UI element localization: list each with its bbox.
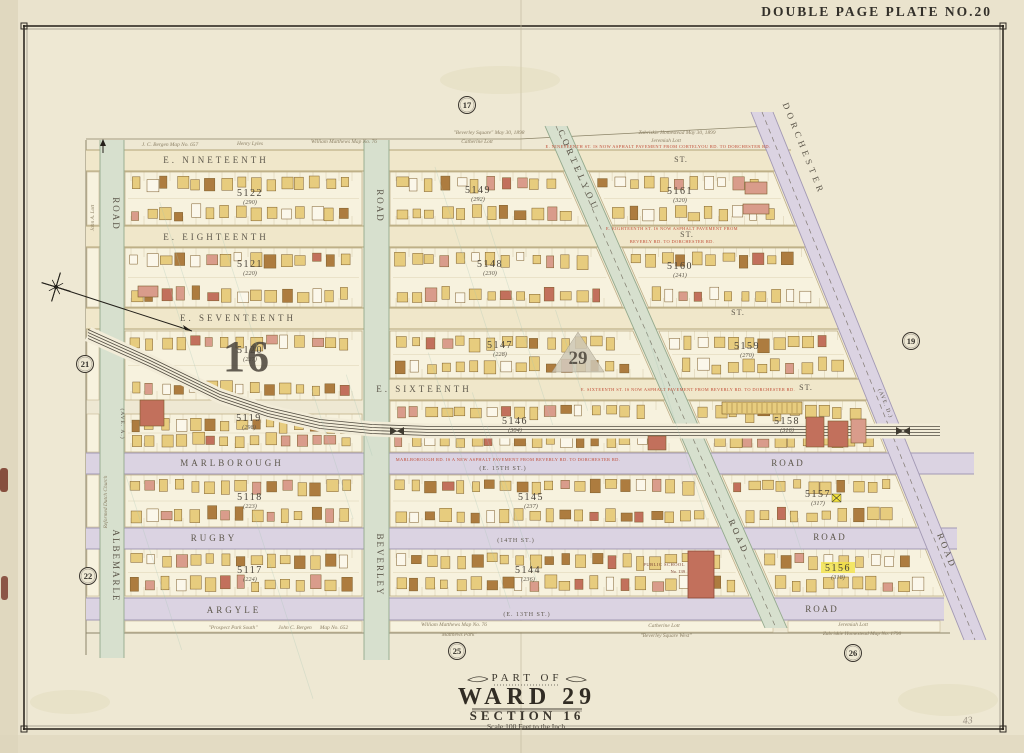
building	[397, 177, 409, 187]
building	[294, 511, 302, 519]
annotation: Henry Lyles	[236, 141, 263, 147]
building	[753, 253, 764, 265]
building	[653, 582, 664, 592]
building	[222, 178, 233, 190]
street-name: E. EIGHTEENTH	[163, 232, 268, 242]
building	[280, 579, 289, 588]
building	[470, 361, 478, 372]
building	[698, 358, 710, 370]
paving-note: E. NINETEENTH ST. IS NOW ASPHALT PAVEMEN…	[546, 144, 771, 149]
svg-text:(304): (304)	[508, 427, 522, 434]
building	[545, 575, 557, 588]
building	[442, 363, 450, 371]
svg-text:(317): (317)	[811, 500, 825, 507]
building	[455, 293, 465, 303]
block-number: 5160	[667, 261, 693, 272]
building	[395, 361, 405, 374]
building	[145, 436, 154, 447]
building	[575, 481, 585, 491]
building	[295, 256, 305, 266]
building	[621, 579, 629, 591]
svg-text:(318): (318)	[831, 574, 845, 581]
svg-text:(316): (316)	[780, 427, 794, 434]
building	[652, 479, 661, 491]
svg-text:26: 26	[849, 648, 858, 658]
building	[204, 178, 214, 191]
annotation: Map No. 652	[319, 625, 349, 631]
building	[608, 556, 616, 569]
building	[163, 384, 171, 394]
building	[472, 205, 481, 218]
building	[621, 480, 631, 492]
building	[204, 482, 214, 494]
building	[238, 177, 246, 187]
building	[683, 482, 694, 496]
building	[442, 286, 450, 299]
building	[413, 209, 421, 218]
map-generated-layer: PUBLIC SCHOOLNo. 1395122(290)5149(292)51…	[0, 0, 1024, 753]
block-5121	[125, 248, 362, 307]
building	[739, 255, 748, 268]
building	[530, 511, 541, 520]
building	[471, 577, 482, 590]
title-ward: WARD 29	[458, 684, 596, 710]
building	[147, 254, 158, 267]
building	[630, 206, 638, 220]
building	[412, 293, 421, 303]
building	[819, 405, 829, 416]
building	[590, 479, 600, 493]
svg-text:25: 25	[453, 646, 462, 656]
building	[413, 338, 420, 346]
building	[309, 176, 319, 188]
annotation: Catherine Lott	[648, 623, 680, 629]
building	[775, 576, 786, 589]
building	[745, 182, 767, 194]
building	[130, 255, 138, 264]
building	[788, 336, 799, 346]
building	[174, 509, 182, 521]
building	[533, 255, 541, 263]
building	[615, 177, 626, 187]
annotation: John A. Lott	[90, 204, 96, 231]
building	[517, 482, 528, 492]
building	[838, 508, 847, 521]
building	[280, 335, 288, 349]
building	[138, 286, 158, 297]
building	[502, 178, 510, 189]
svg-text:(270): (270)	[740, 352, 754, 359]
building	[800, 291, 811, 303]
building	[441, 176, 450, 190]
building	[191, 180, 200, 190]
annotation: Zabriskie Homestead May 30, 1899	[638, 130, 715, 136]
paving-note: BEVERLY RD. TO DORCHESTER RD.	[630, 239, 715, 244]
building	[488, 292, 496, 300]
building	[866, 576, 876, 590]
building	[698, 337, 708, 347]
block-number: 5121	[237, 259, 263, 270]
building	[325, 384, 335, 393]
building	[297, 435, 307, 446]
building	[500, 555, 508, 564]
building	[743, 359, 755, 372]
building	[683, 358, 690, 372]
building	[487, 408, 497, 417]
building	[530, 407, 538, 420]
building	[294, 177, 303, 189]
building	[590, 576, 598, 589]
building	[471, 513, 479, 523]
building	[221, 511, 230, 520]
building	[396, 337, 406, 348]
annotation: "Beverley Square" May 30, 1898	[454, 130, 525, 136]
building	[312, 207, 324, 220]
building	[606, 338, 614, 350]
street-name: ARGYLE	[207, 605, 262, 615]
building	[851, 419, 866, 443]
building	[575, 579, 583, 589]
building	[517, 292, 525, 300]
paving-note: E. SIXTEENTH ST. IS NOW ASPHALT PAVEMENT…	[581, 387, 795, 392]
svg-text:PUBLIC SCHOOL: PUBLIC SCHOOL	[643, 562, 685, 567]
building	[456, 362, 464, 372]
building	[559, 581, 570, 590]
building	[140, 400, 164, 426]
building	[484, 361, 496, 374]
building	[342, 577, 353, 591]
x-box-marker	[832, 494, 841, 502]
building	[252, 510, 263, 522]
paving-note: MARLBOROUGH RD. IS A NEW ASPHALT PAVEMEN…	[396, 457, 621, 462]
building	[833, 407, 842, 418]
building	[710, 287, 719, 299]
building	[160, 176, 167, 188]
building	[802, 336, 813, 348]
building	[635, 512, 644, 522]
street-name: (AVE. A.)	[119, 408, 126, 439]
block-number: 5157	[805, 489, 831, 500]
building	[743, 204, 769, 214]
building	[637, 405, 644, 419]
building	[548, 207, 557, 221]
building	[484, 480, 494, 489]
building	[426, 578, 435, 589]
street-name: ROAD	[813, 532, 847, 542]
building	[561, 255, 570, 268]
building	[472, 482, 479, 492]
building	[177, 579, 187, 591]
building	[500, 509, 509, 523]
building	[193, 432, 205, 444]
building	[756, 292, 766, 302]
building	[266, 433, 277, 445]
building	[340, 339, 348, 351]
building	[397, 578, 407, 589]
building	[898, 581, 909, 591]
building	[575, 510, 583, 521]
building	[440, 580, 447, 589]
building	[428, 555, 438, 566]
building	[501, 361, 512, 372]
building	[191, 256, 201, 267]
building	[675, 206, 687, 218]
building	[822, 511, 831, 519]
building	[529, 338, 537, 348]
block-5161	[589, 172, 794, 225]
building	[280, 556, 290, 564]
building	[206, 554, 214, 564]
building	[145, 383, 153, 394]
building	[692, 252, 702, 265]
building	[807, 513, 818, 522]
building	[728, 362, 738, 372]
building	[281, 509, 288, 523]
building	[163, 556, 172, 567]
building	[621, 513, 632, 521]
building	[660, 208, 667, 221]
building	[327, 480, 339, 492]
building	[670, 338, 680, 349]
building	[395, 480, 405, 490]
street-name: ST.	[680, 230, 694, 239]
building	[267, 512, 274, 521]
street-name: (14TH ST.)	[497, 537, 535, 544]
building	[409, 407, 417, 417]
building	[324, 436, 336, 445]
building	[251, 556, 263, 565]
street-name: ST.	[674, 155, 688, 164]
building	[652, 287, 661, 301]
building	[854, 508, 865, 522]
building	[606, 577, 613, 590]
building	[733, 177, 744, 190]
building	[324, 208, 333, 221]
building	[819, 357, 827, 370]
building	[574, 405, 581, 416]
building	[577, 256, 588, 270]
svg-text:(237): (237)	[524, 503, 538, 510]
building	[440, 508, 452, 521]
street-name: E. NINETEENTH	[163, 155, 268, 165]
building	[802, 363, 813, 374]
building	[132, 212, 139, 221]
building	[605, 479, 616, 488]
street-name: ALBEMARLE	[111, 530, 121, 603]
building	[175, 479, 184, 489]
street-name: ROAD	[375, 189, 385, 223]
building	[454, 407, 465, 416]
building	[868, 507, 880, 520]
building	[163, 338, 173, 349]
block-number: 5158	[774, 416, 800, 427]
building	[868, 482, 877, 492]
building	[341, 254, 350, 265]
street-name: ST.	[799, 383, 813, 392]
map-canvas: PUBLIC SCHOOLNo. 1395122(290)5149(292)51…	[0, 0, 1024, 753]
building	[644, 176, 654, 188]
building	[440, 256, 449, 267]
svg-text:21: 21	[81, 359, 90, 369]
block-number: 5159	[734, 341, 760, 352]
building	[208, 506, 217, 519]
annotation: Jeremiah Lott	[651, 138, 681, 144]
annotation: William Matthews Map No. 76	[421, 622, 487, 628]
building	[267, 207, 277, 218]
building	[749, 481, 761, 490]
building	[760, 511, 769, 520]
building	[192, 204, 201, 218]
annotation: "Matthews Park"	[439, 632, 477, 638]
building	[781, 252, 793, 265]
building	[562, 554, 570, 565]
building	[425, 512, 434, 520]
building	[607, 406, 617, 415]
building	[265, 290, 277, 302]
building	[719, 209, 728, 221]
annotation: Reformed Dutch Church	[102, 475, 109, 529]
building	[853, 577, 863, 589]
building	[131, 553, 143, 562]
building	[794, 480, 801, 488]
building	[818, 336, 826, 347]
street-name: E. SEVENTEENTH	[180, 313, 296, 323]
building	[264, 255, 276, 268]
building	[487, 553, 497, 562]
building	[410, 360, 418, 372]
building	[205, 419, 215, 431]
building	[757, 439, 769, 447]
building	[727, 580, 735, 592]
building	[487, 511, 495, 523]
building	[469, 338, 480, 352]
building	[518, 178, 528, 188]
building	[395, 252, 406, 266]
building	[606, 361, 614, 371]
building	[503, 577, 514, 588]
building	[529, 294, 540, 302]
building	[500, 291, 511, 300]
building	[174, 212, 182, 221]
building	[456, 253, 465, 264]
building	[900, 556, 909, 567]
building	[130, 481, 140, 490]
building	[132, 420, 139, 432]
building	[410, 512, 419, 522]
building	[327, 179, 336, 189]
building	[409, 179, 417, 192]
svg-text:(223): (223)	[243, 503, 257, 510]
building	[424, 179, 432, 192]
building	[560, 292, 571, 300]
building	[250, 382, 259, 392]
annotation: J. C. Bergen Map No. 657	[142, 142, 199, 148]
building	[806, 580, 816, 592]
building	[191, 555, 201, 566]
building	[162, 435, 173, 447]
building	[499, 205, 507, 218]
building	[854, 481, 865, 492]
building	[593, 289, 600, 302]
building	[443, 339, 453, 348]
building	[532, 438, 542, 448]
plate-ref-22: 22	[80, 568, 97, 585]
building	[426, 338, 435, 349]
building	[222, 554, 230, 566]
building	[529, 179, 538, 190]
building	[544, 406, 556, 417]
building	[561, 405, 572, 413]
building	[190, 510, 200, 523]
building	[516, 556, 524, 565]
building	[313, 435, 321, 444]
building	[591, 336, 603, 346]
building	[694, 511, 704, 519]
building	[325, 338, 336, 348]
building	[192, 286, 200, 300]
annotation: "Prospect Park South"	[209, 625, 259, 631]
building	[325, 580, 336, 591]
svg-text:22: 22	[84, 571, 93, 581]
building	[238, 292, 249, 303]
building	[772, 289, 781, 302]
building	[795, 553, 804, 562]
building	[705, 176, 714, 189]
building	[160, 208, 172, 220]
building	[283, 289, 293, 302]
building	[340, 385, 349, 395]
building	[312, 338, 323, 346]
building	[850, 408, 861, 420]
title-section: SECTION 16	[470, 708, 585, 723]
building	[412, 480, 419, 491]
building	[623, 554, 631, 567]
building	[631, 180, 639, 189]
building	[191, 336, 201, 345]
building	[177, 338, 186, 350]
building	[781, 556, 791, 569]
building	[267, 180, 276, 191]
building	[458, 556, 466, 569]
building	[311, 575, 322, 589]
building	[176, 419, 187, 431]
building	[442, 482, 454, 491]
building	[130, 577, 138, 591]
building	[712, 365, 721, 374]
building	[809, 557, 818, 570]
building	[160, 256, 172, 265]
building	[178, 176, 189, 188]
building	[456, 209, 464, 220]
building	[207, 255, 218, 265]
building	[883, 583, 893, 591]
building	[871, 555, 880, 566]
building	[590, 512, 599, 520]
building	[742, 292, 749, 301]
building	[786, 363, 794, 373]
svg-text:(290): (290)	[243, 199, 257, 206]
building	[236, 206, 246, 217]
svg-text:19: 19	[907, 336, 916, 346]
plate-ref-26: 26	[845, 645, 862, 662]
block-number: 5122	[237, 188, 263, 199]
building	[777, 507, 785, 519]
building	[326, 509, 334, 523]
building	[883, 479, 890, 488]
building	[282, 209, 292, 219]
building	[176, 435, 187, 447]
building	[544, 481, 552, 490]
